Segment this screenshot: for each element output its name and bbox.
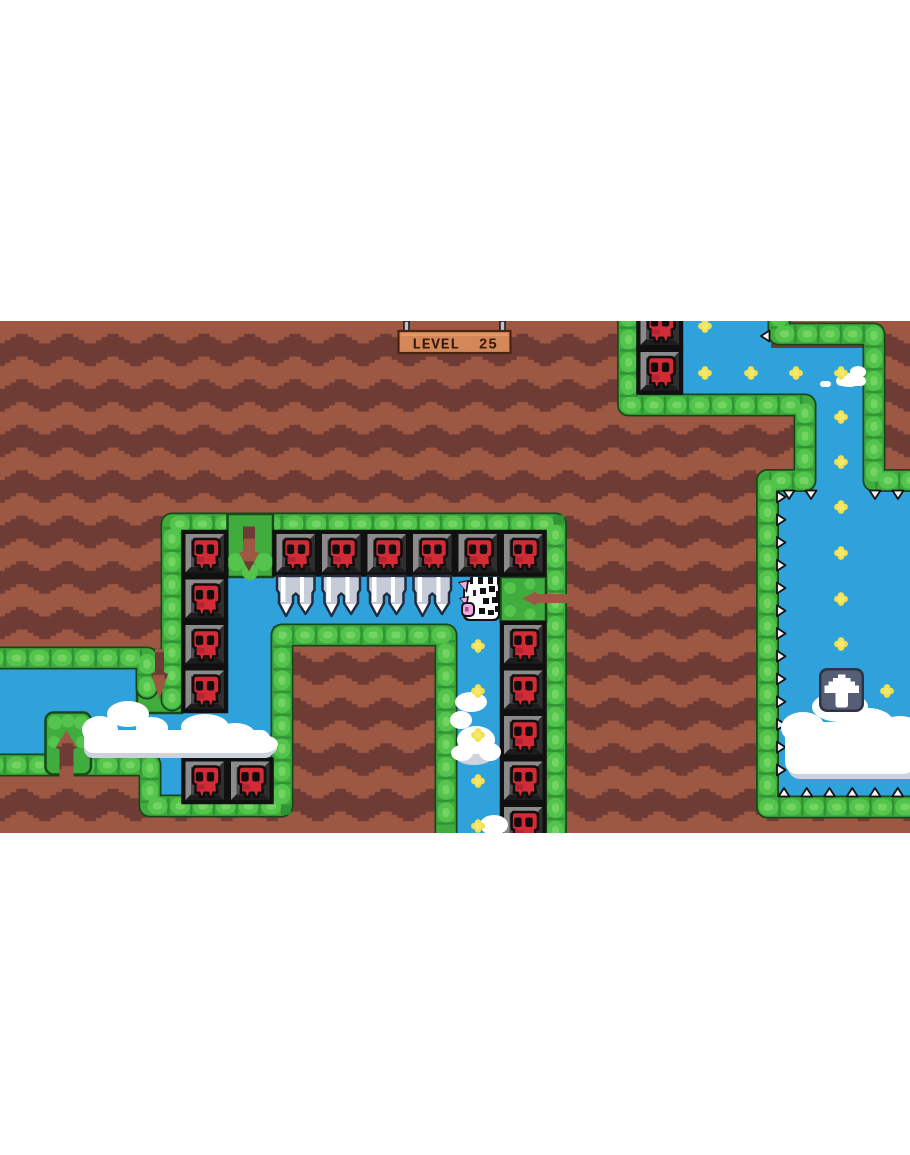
svg-text:LEVEL 25: LEVEL 25 <box>412 338 498 354</box>
